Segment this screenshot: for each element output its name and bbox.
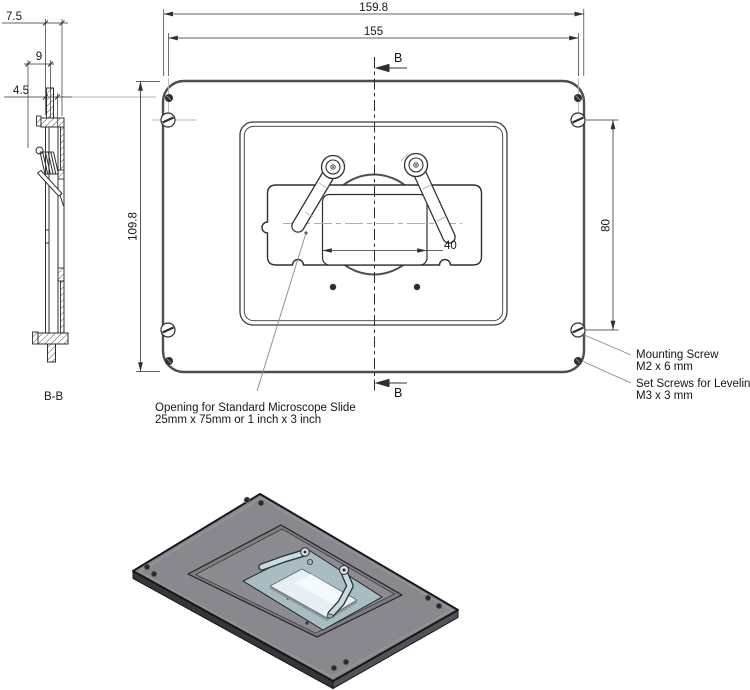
section-clamp-bar: [47, 88, 54, 118]
top-view: 159.8 155 109.8 80: [128, 2, 619, 400]
section-arrow-top: [375, 64, 390, 72]
iso-screw-left-2: [151, 571, 157, 577]
technical-drawing-canvas: 7.5 9 4.5: [0, 0, 750, 690]
mounting-screw-bottom-left: [161, 323, 175, 337]
pin-right: [414, 284, 420, 290]
mounting-screw-leader: [582, 334, 631, 355]
dim-window-width-label: 40: [444, 240, 457, 252]
pin-left: [330, 284, 336, 290]
section-wall-hatch-lower: [61, 281, 65, 333]
iso-screw-left-1: [144, 564, 150, 570]
dim-side-depth-label: 7.5: [6, 11, 22, 23]
section-cut-top-label: B: [394, 51, 402, 65]
dim-side-span-label: 9: [36, 51, 42, 63]
technical-drawing-page: 7.5 9 4.5: [0, 0, 750, 690]
opening-note-line1: Opening for Standard Microscope Slide: [155, 402, 356, 414]
dim-screw-width: 155: [169, 26, 579, 76]
dim-side-inner: 4.5: [4, 85, 156, 127]
iso-screw-bottom-2: [343, 659, 349, 665]
section-bottom-post: [48, 344, 56, 362]
set-screw-top-right: [574, 94, 582, 102]
section-bottom-tab-left: [33, 332, 39, 344]
section-part: [33, 88, 69, 362]
iso-screw-right-1: [425, 595, 431, 601]
dim-side-depth: 7.5: [2, 11, 68, 116]
section-wall-block-1: [58, 170, 64, 179]
section-cut-top: B: [375, 51, 408, 72]
dim-screw-height-label: 80: [601, 219, 613, 232]
set-screw-label-line1: Set Screws for Leveling: [636, 378, 750, 390]
iso-screw-right-2: [436, 603, 442, 609]
set-screw-top-left: [165, 94, 173, 102]
section-view-bb: 7.5 9 4.5: [2, 11, 156, 403]
iso-pocket-hole-2: [305, 621, 308, 624]
dim-side-inner-label: 4.5: [13, 85, 29, 97]
dim-outer-height-label: 109.8: [128, 212, 140, 241]
mounting-screw-top-right: [571, 113, 585, 127]
mounting-screw-top-left: [161, 113, 175, 127]
section-top-flange: [41, 118, 64, 127]
set-screw-bottom-left: [165, 357, 173, 365]
set-screw-leader: [582, 361, 631, 383]
section-cut-bottom: B: [375, 379, 408, 400]
dim-screw-width-label: 155: [364, 26, 383, 38]
iso-screw-bottom-1: [331, 665, 337, 671]
iso-screw-top-1: [244, 497, 250, 503]
dim-outer-width: 159.8: [164, 2, 584, 76]
iso-screw-top-2: [258, 500, 264, 506]
mounting-screw-label-line1: Mounting Screw: [636, 349, 719, 361]
dim-outer-height: 109.8: [128, 82, 161, 372]
mounting-screw-label-line2: M2 x 6 mm: [636, 361, 693, 373]
opening-note-line2: 25mm x 75mm or 1 inch x 3 inch: [155, 414, 321, 426]
dim-outer-width-label: 159.8: [359, 2, 388, 14]
dim-screw-height: 80: [586, 120, 619, 330]
mounting-screw-bottom-right: [571, 323, 585, 337]
section-spring: [36, 147, 59, 174]
section-bottom-flange: [38, 333, 68, 344]
section-arrow-bottom: [375, 379, 390, 387]
section-left-tab: [37, 116, 42, 126]
section-wall-hatch-upper: [61, 127, 65, 170]
isometric-view: [133, 494, 458, 689]
section-view-label: B-B: [44, 391, 64, 403]
set-screw-bottom-right: [574, 357, 582, 365]
section-wall-block-2: [58, 268, 64, 281]
section-cut-bottom-label: B: [394, 386, 402, 400]
set-screw-label-line2: M3 x 3 mm: [636, 390, 693, 402]
